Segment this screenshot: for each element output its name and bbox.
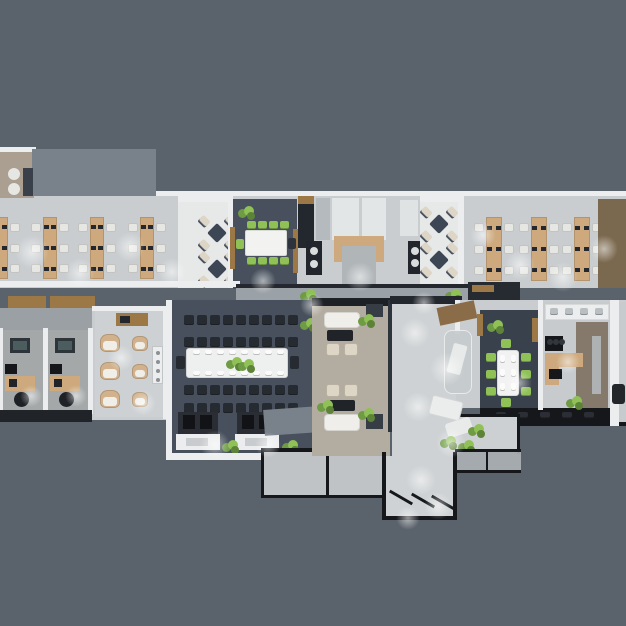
- monitor: [575, 247, 580, 251]
- chair-col-green: [486, 353, 496, 396]
- table-seat-pads: [500, 355, 505, 391]
- alcove-roof-slab: [32, 149, 156, 196]
- light-pool: [158, 258, 186, 286]
- exec-chair: [612, 384, 625, 404]
- coffee-set: [5, 364, 17, 374]
- terrace-floor: [263, 452, 383, 498]
- chair: [262, 385, 272, 395]
- meeting-chair-dark: [288, 238, 296, 249]
- plant: [487, 320, 505, 334]
- light-pool: [470, 222, 496, 248]
- meeting-chair: [501, 339, 511, 348]
- monitor: [141, 225, 146, 229]
- chair: [474, 266, 484, 275]
- dark-strip: [0, 410, 92, 422]
- chair: [193, 350, 200, 355]
- cabinet: [316, 198, 330, 240]
- light-pool: [250, 268, 276, 294]
- east-entry-wood: [472, 285, 494, 292]
- chair: [549, 223, 559, 232]
- chair: [565, 308, 573, 315]
- chair: [265, 350, 272, 355]
- chair: [106, 223, 116, 232]
- sink: [310, 260, 318, 268]
- plant-leaf: [247, 212, 255, 220]
- glass-frame: [455, 449, 521, 452]
- armchair: [326, 384, 340, 397]
- chair: [247, 257, 256, 265]
- glass-frame: [517, 414, 520, 454]
- table-plant: [238, 359, 256, 373]
- coffee-machine: [183, 415, 195, 429]
- monitor: [496, 247, 501, 251]
- shelf-items: [550, 308, 603, 315]
- chair: [59, 244, 69, 253]
- light-pool: [506, 370, 532, 396]
- chair: [236, 315, 246, 325]
- chair: [193, 371, 200, 376]
- training-chair: [132, 364, 148, 379]
- monitor: [584, 268, 589, 272]
- wall-segment: [458, 196, 464, 288]
- chair: [31, 223, 41, 232]
- chair: [275, 315, 285, 325]
- coffee-table: [327, 330, 353, 341]
- light-pool: [65, 385, 87, 407]
- plant-leaf: [247, 365, 255, 373]
- corner-office-floor: [619, 302, 626, 422]
- chair: [280, 257, 289, 265]
- light-pool: [412, 291, 436, 315]
- chair: [249, 315, 259, 325]
- glass-cabinet: [332, 198, 359, 240]
- wall-segment: [88, 328, 93, 414]
- chair: [241, 350, 248, 355]
- chair: [184, 385, 194, 395]
- cafe-shelf-west: [178, 196, 230, 202]
- armchair: [326, 343, 340, 356]
- armchair: [344, 343, 358, 356]
- table-seat-pads: [193, 350, 284, 355]
- sofa: [324, 414, 360, 431]
- glass-frame: [263, 495, 383, 498]
- desk-items: [9, 379, 17, 387]
- service-counter-side: [376, 236, 384, 262]
- table: [429, 250, 449, 270]
- wall-segment: [43, 328, 48, 414]
- desk-items: [54, 379, 62, 387]
- chair: [262, 315, 272, 325]
- chair: [197, 215, 210, 228]
- plant: [566, 396, 584, 410]
- chair: [511, 355, 516, 363]
- monitor: [148, 225, 153, 229]
- chair: [540, 412, 550, 418]
- cushion: [135, 342, 145, 350]
- monitor: [51, 267, 56, 271]
- light-pool: [115, 232, 145, 262]
- chair: [486, 353, 496, 362]
- light-pool: [396, 506, 420, 530]
- chair-row-green: [247, 257, 289, 265]
- chair: [10, 223, 20, 232]
- monitor: [98, 225, 103, 229]
- table: [207, 223, 227, 243]
- seat-group: [420, 241, 458, 279]
- chair: [210, 315, 220, 325]
- chair: [275, 337, 285, 347]
- chair: [500, 383, 505, 391]
- monitor: [496, 268, 501, 272]
- screen: [13, 341, 27, 350]
- light-pool: [345, 262, 375, 292]
- wood-shelf: [8, 296, 46, 308]
- end-chair: [176, 356, 185, 369]
- table: [207, 259, 227, 279]
- alcove-desk: [23, 168, 33, 196]
- sink: [310, 247, 318, 255]
- cushion: [103, 369, 117, 378]
- monitor: [541, 268, 546, 272]
- plant: [358, 314, 376, 328]
- cushion: [103, 397, 117, 406]
- chair: [277, 371, 284, 376]
- chair: [205, 371, 212, 376]
- cushion: [135, 370, 145, 378]
- chair: [197, 337, 207, 347]
- chair: [205, 350, 212, 355]
- monitor: [98, 246, 103, 250]
- coffee-pot: [559, 339, 565, 345]
- monitor: [98, 267, 103, 271]
- end-chair: [290, 356, 299, 369]
- socket: [156, 351, 160, 355]
- light-pool: [406, 465, 436, 495]
- chair: [445, 242, 458, 255]
- chair: [229, 371, 236, 376]
- glass-frame: [486, 450, 488, 472]
- chair: [229, 350, 236, 355]
- light-pool: [403, 392, 433, 422]
- monitor: [148, 246, 153, 250]
- service-counter-side: [334, 236, 342, 262]
- chair: [550, 308, 558, 315]
- chair: [445, 266, 458, 279]
- chair: [288, 385, 298, 395]
- chair: [262, 337, 272, 347]
- socket: [156, 360, 160, 364]
- cafe-shelf-east: [420, 196, 458, 202]
- plant-leaf: [326, 406, 334, 414]
- plant-leaf: [496, 326, 504, 334]
- lounge-carpet: [312, 306, 390, 456]
- chair: [419, 242, 432, 255]
- chair: [223, 315, 233, 325]
- monitor: [44, 267, 49, 271]
- door-jamb: [230, 227, 235, 269]
- monitor: [532, 247, 537, 251]
- chair: [288, 337, 298, 347]
- plant-leaf: [367, 414, 375, 422]
- plant: [238, 206, 256, 220]
- chair: [59, 223, 69, 232]
- chair: [78, 244, 88, 253]
- coffee-set: [50, 364, 62, 374]
- monitor: [487, 268, 492, 272]
- chair: [247, 221, 256, 229]
- chair: [210, 385, 220, 395]
- monitor: [496, 226, 501, 230]
- coffee-machine: [200, 415, 212, 429]
- monitor: [91, 225, 96, 229]
- glass-frame: [455, 470, 521, 473]
- glass-cabinet: [400, 200, 418, 236]
- monitor: [51, 225, 56, 229]
- monitor: [575, 226, 580, 230]
- light-pool: [424, 492, 452, 520]
- chair: [184, 315, 194, 325]
- floor-plan: [0, 0, 626, 626]
- meeting-chair: [236, 239, 244, 249]
- chair: [519, 223, 529, 232]
- armchair: [344, 384, 358, 397]
- chair: [156, 244, 166, 253]
- chair: [269, 221, 278, 229]
- chair: [223, 403, 233, 413]
- seat-group: [420, 205, 458, 243]
- light-pool: [556, 350, 580, 374]
- chair: [580, 308, 588, 315]
- chair: [486, 370, 496, 379]
- light-pool: [430, 352, 464, 386]
- monitor: [2, 267, 7, 271]
- monitor: [141, 267, 146, 271]
- chair: [217, 350, 224, 355]
- chair: [106, 264, 116, 273]
- chair: [486, 387, 496, 396]
- chair: [197, 251, 210, 264]
- chair: [562, 245, 572, 254]
- monitor: [44, 225, 49, 229]
- chair: [500, 355, 505, 363]
- kitchen-niche-shelf: [298, 196, 314, 204]
- light-pool: [505, 250, 535, 280]
- chair: [258, 257, 267, 265]
- glass-cabinet: [362, 198, 386, 240]
- plant-leaf: [367, 320, 375, 328]
- chair: [128, 223, 138, 232]
- screen: [58, 341, 72, 350]
- chair: [595, 308, 603, 315]
- chair: [419, 206, 432, 219]
- glass-roof: [455, 450, 521, 472]
- chair: [210, 337, 220, 347]
- chair: [419, 266, 432, 279]
- training-chair: [100, 390, 120, 408]
- wall-segment: [610, 300, 619, 426]
- coffee-machine: [242, 415, 254, 429]
- chair: [504, 223, 514, 232]
- chair: [258, 221, 267, 229]
- audience-chair-row: [184, 337, 298, 347]
- chair-row-green: [247, 221, 289, 229]
- alcove-chair: [8, 168, 20, 180]
- plant-leaf: [575, 402, 583, 410]
- chair: [184, 337, 194, 347]
- chair: [562, 412, 572, 418]
- meeting-table-west: [245, 230, 287, 256]
- monitor: [532, 226, 537, 230]
- chair: [562, 223, 572, 232]
- glass-frame: [382, 452, 386, 520]
- chair: [236, 337, 246, 347]
- light-pool: [300, 293, 324, 317]
- chair: [521, 353, 531, 362]
- chair: [277, 350, 284, 355]
- console-items: [120, 316, 130, 323]
- monitor: [584, 226, 589, 230]
- audience-chair-row: [184, 385, 298, 395]
- chair: [549, 245, 559, 254]
- sink: [411, 247, 419, 255]
- wall-segment: [0, 281, 240, 287]
- plant-leaf: [477, 430, 485, 438]
- light-pool: [15, 235, 49, 269]
- monitor: [91, 246, 96, 250]
- chair: [249, 337, 259, 347]
- light-pool: [65, 258, 95, 288]
- meeting-chair: [501, 398, 511, 407]
- chair: [217, 371, 224, 376]
- chair: [269, 257, 278, 265]
- chair: [445, 206, 458, 219]
- glass-door: [592, 336, 601, 394]
- socket: [156, 369, 160, 373]
- monitor: [2, 246, 7, 250]
- chair: [197, 315, 207, 325]
- light-pool: [255, 432, 281, 458]
- chair: [156, 223, 166, 232]
- chair: [275, 385, 285, 395]
- wall-segment: [0, 328, 3, 414]
- monitor: [2, 225, 7, 229]
- light-pool: [436, 428, 466, 458]
- alcove-chair: [8, 183, 20, 195]
- light-pool: [200, 430, 230, 460]
- wood-shelf: [50, 296, 95, 308]
- sink: [411, 259, 419, 267]
- monitor: [541, 247, 546, 251]
- light-pool: [548, 262, 578, 292]
- light-pool: [590, 235, 618, 263]
- chair: [265, 371, 272, 376]
- table: [429, 214, 449, 234]
- sofa: [324, 312, 360, 328]
- chair: [249, 385, 259, 395]
- chair: [288, 315, 298, 325]
- pillar-wood: [477, 314, 483, 336]
- plant: [468, 424, 486, 438]
- monitor: [148, 267, 153, 271]
- chair: [223, 385, 233, 395]
- monitor: [541, 226, 546, 230]
- chair: [500, 369, 505, 377]
- training-chair: [132, 336, 148, 351]
- chair: [197, 385, 207, 395]
- chair: [223, 337, 233, 347]
- chair: [10, 264, 20, 273]
- chair: [78, 223, 88, 232]
- plant: [358, 408, 376, 422]
- office-corridor: [0, 308, 92, 330]
- chair: [280, 221, 289, 229]
- monitor: [487, 247, 492, 251]
- light-pool: [20, 385, 42, 407]
- socket: [156, 378, 160, 382]
- chair: [584, 412, 594, 418]
- monitor: [584, 247, 589, 251]
- monitor: [51, 246, 56, 250]
- plant: [317, 400, 335, 414]
- light-pool: [400, 318, 430, 348]
- audience-chair-row: [184, 315, 298, 325]
- chair: [253, 350, 260, 355]
- chair: [236, 385, 246, 395]
- chair: [128, 264, 138, 273]
- light-pool: [108, 345, 134, 371]
- light-pool: [130, 390, 156, 416]
